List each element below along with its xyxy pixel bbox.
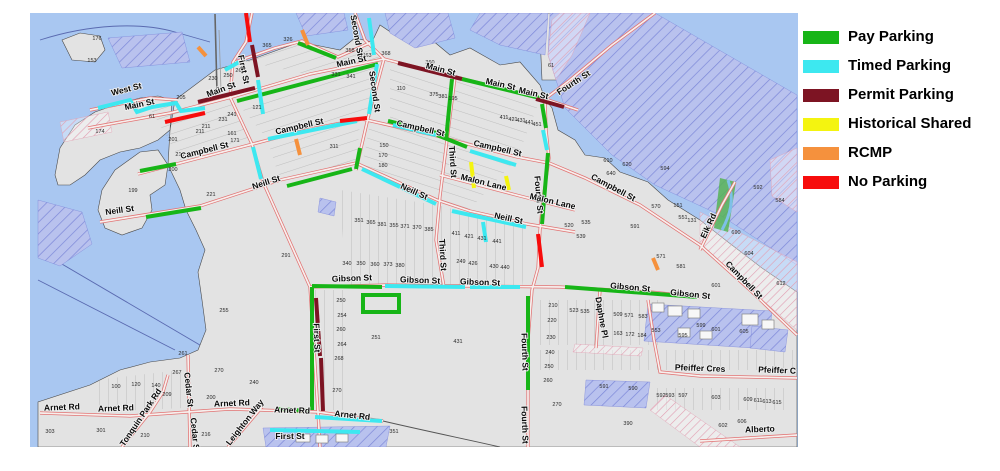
parcel-number: 326 — [283, 37, 292, 43]
parcel-number: 264 — [337, 342, 346, 348]
parcel-number: 268 — [334, 356, 343, 362]
parcel-number: 249 — [456, 259, 465, 265]
parcel-number: 584 — [775, 198, 784, 204]
parking-segment-pay — [312, 286, 382, 287]
parcel-number: 381 — [438, 94, 447, 100]
parcel-number: 231 — [218, 117, 227, 123]
parcel-number: 163 — [613, 331, 622, 337]
parcel-number: 131 — [687, 218, 696, 224]
parcel-number: 368 — [381, 51, 390, 57]
parcel-number: 597 — [678, 393, 687, 399]
parcel-number: 230 — [546, 335, 555, 341]
parcel-number: 161 — [227, 131, 236, 137]
parcel-number: 612 — [776, 281, 785, 287]
parcel-number: 211 — [202, 124, 211, 130]
parcel-number: 581 — [676, 264, 685, 270]
parcel-number: 110 — [397, 86, 406, 92]
street-label: Fourth St — [519, 333, 530, 371]
parcel-number: 592 — [753, 185, 762, 191]
parcel-number: 270 — [214, 368, 223, 374]
parcel-number: 351 — [354, 218, 363, 224]
parcel-number: 100 — [111, 384, 120, 390]
parcel-number: 195 — [448, 96, 457, 102]
legend-item: Historical Shared — [803, 117, 998, 131]
parcel-number: 371 — [400, 224, 409, 230]
legend-swatch-noparking — [803, 176, 839, 189]
parcel-number: 171 — [230, 138, 239, 144]
parcel-number: 605 — [739, 329, 748, 335]
legend-label: RCMP — [848, 146, 892, 160]
parcel-number: 535 — [581, 220, 590, 226]
parcel-number: 441 — [492, 239, 501, 245]
parcel-number: 539 — [576, 234, 585, 240]
parcel-number: 523 — [569, 308, 578, 314]
parcel-number: 291 — [281, 253, 290, 259]
parcel-number: 358 — [345, 48, 354, 54]
parcel-number: 430 — [489, 264, 498, 270]
parcel-number: 301 — [96, 428, 105, 434]
parcel-number: 210 — [140, 433, 149, 439]
parcel-number: 205 — [176, 95, 185, 101]
street-label: Gibson St — [400, 274, 441, 285]
parcel-number: 595 — [678, 333, 687, 339]
street-label: Arnet Rd — [274, 404, 310, 415]
parcel-number: 380 — [395, 263, 404, 269]
street-label: Arnet Rd — [214, 397, 250, 408]
parcel-number: 593 — [665, 393, 674, 399]
legend-swatch-permit — [803, 89, 839, 102]
legend-swatch-timed — [803, 60, 839, 73]
parcel-number: 250 — [544, 364, 553, 370]
parcel-number: 535 — [580, 309, 589, 315]
parcel-number: 553 — [651, 328, 660, 334]
parcel-number: 603 — [711, 395, 720, 401]
street-label: Pfeiffer Cres — [675, 362, 726, 374]
parcel-number: 240 — [545, 350, 554, 356]
parcel-number: 351 — [389, 429, 398, 435]
parcel-number: 260 — [336, 327, 345, 333]
street-label: Alberto — [745, 423, 775, 434]
street-label: Arnet Rd — [98, 402, 134, 413]
parcel-number: 509 — [613, 312, 622, 318]
parcel-number: 176 — [92, 36, 101, 42]
parcel-number: 570 — [651, 204, 660, 210]
parcel-number: 599 — [696, 323, 705, 329]
parcel-number: 591 — [630, 224, 639, 230]
street-label: Gibson St — [460, 276, 501, 287]
legend-item: No Parking — [803, 175, 998, 189]
parcel-number: 250 — [223, 73, 232, 79]
parcel-number: 210 — [548, 303, 557, 309]
parcel-number: 221 — [206, 192, 215, 198]
parcel-number: 241 — [227, 112, 236, 118]
parcel-number: 240 — [249, 380, 258, 386]
parcel-number: 602 — [718, 423, 727, 429]
parking-segment-timed — [385, 286, 465, 287]
legend-swatch-rcmp — [803, 147, 839, 160]
parcel-number: 381 — [377, 222, 386, 228]
parcel-number: 220 — [547, 318, 556, 324]
parking-segment-permit — [321, 358, 323, 411]
parcel-number: 571 — [656, 254, 665, 260]
parcel-number: 254 — [337, 313, 346, 319]
parcel-number: 365 — [262, 43, 271, 49]
parcel-number: 431 — [477, 236, 486, 242]
parcel-number: 360 — [370, 262, 379, 268]
parcel-number: 120 — [131, 382, 140, 388]
parcel-number: 251 — [371, 335, 380, 341]
legend-swatch-pay — [803, 31, 839, 44]
parcel-number: 303 — [45, 429, 54, 435]
parcel-number: 591 — [599, 384, 608, 390]
legend-label: Historical Shared — [848, 117, 971, 131]
parcel-number: 209 — [162, 392, 171, 398]
parcel-number: 174 — [95, 129, 104, 135]
parcel-number: 250 — [336, 298, 345, 304]
parcel-number: 270 — [332, 388, 341, 394]
parcel-number: 260 — [543, 378, 552, 384]
parcel-number: 520 — [564, 223, 573, 229]
parcel-number: 431 — [453, 339, 462, 345]
parcel-number: 201 — [168, 137, 177, 143]
parcel-number: 255 — [219, 308, 228, 314]
parcel-number: 421 — [464, 234, 473, 240]
parcel-number: 601 — [711, 283, 720, 289]
street-label: First St — [275, 431, 304, 441]
parcel-number: 270 — [552, 402, 561, 408]
parcel-number: 375 — [429, 92, 438, 98]
parcel-number: 200 — [168, 167, 177, 173]
parcel-number: 390 — [623, 421, 632, 427]
legend-swatch-historical — [803, 118, 839, 131]
parcel-number: 230 — [208, 76, 217, 82]
legend-item: Timed Parking — [803, 59, 998, 73]
parcel-number: 199 — [128, 188, 137, 194]
parcel-number: 611 — [754, 398, 763, 404]
legend-label: Timed Parking — [848, 59, 951, 73]
parcel-number: 594 — [660, 166, 669, 172]
parcel-number: 341 — [346, 74, 355, 80]
parcel-number: 267 — [172, 370, 181, 376]
parcel-number: 172 — [625, 332, 634, 338]
parcel-number: 153 — [87, 58, 96, 64]
parcel-number: 615 — [772, 400, 781, 406]
parcel-number: 690 — [731, 230, 740, 236]
map-legend: Pay Parking Timed Parking Permit Parking… — [803, 30, 998, 204]
parcel-number: 411 — [452, 231, 461, 237]
legend-item: Permit Parking — [803, 88, 998, 102]
legend-item: Pay Parking — [803, 30, 998, 44]
parcel-number: 613 — [762, 399, 771, 405]
parcel-number: 640 — [606, 171, 615, 177]
parcel-number: 373 — [383, 262, 392, 268]
parcel-number: 385 — [424, 227, 433, 233]
legend-label: Pay Parking — [848, 30, 934, 44]
parcel-number: 355 — [389, 223, 398, 229]
legend-item: RCMP — [803, 146, 998, 160]
parcel-number: 620 — [622, 162, 631, 168]
parcel-number: 340 — [342, 261, 351, 267]
parcel-number: 551 — [678, 215, 687, 221]
parcel-number: 571 — [624, 313, 633, 319]
parcel-number: 121 — [252, 105, 261, 111]
parcel-number: 216 — [201, 432, 210, 438]
parcel-number: 61 — [548, 63, 554, 69]
parcel-number: 601 — [711, 327, 720, 333]
parcel-number: 350 — [356, 261, 365, 267]
parcel-number: 451 — [532, 122, 541, 128]
parcel-number: 583 — [638, 314, 647, 320]
street-label: Fourth St — [519, 406, 530, 444]
parcel-number: 180 — [378, 163, 387, 169]
parcel-number: 150 — [379, 143, 388, 149]
parcel-number: 370 — [412, 225, 421, 231]
parcel-number: 609 — [743, 397, 752, 403]
parcel-number: 184 — [637, 333, 646, 339]
street-label: Gibson St — [332, 272, 373, 283]
street-label: First St — [311, 323, 322, 353]
street-label: Arnet Rd — [44, 401, 80, 412]
legend-label: No Parking — [848, 175, 927, 189]
parcel-number: 311 — [330, 144, 339, 150]
street-label: Pfeiffer C — [758, 364, 796, 375]
parcel-number: 440 — [500, 265, 509, 271]
parcel-number: 365 — [366, 220, 375, 226]
parcel-number: 604 — [744, 251, 753, 257]
parcel-number: 331 — [331, 72, 340, 78]
parcel-number: 592 — [656, 393, 665, 399]
parcel-number: 426 — [468, 261, 477, 267]
parcel-number: 170 — [378, 153, 387, 159]
parking-map-page: { "legend": { "items": [ {"label": "Pay … — [0, 0, 1000, 471]
parcel-number: 411 — [500, 115, 509, 121]
parcel-number: 151 — [673, 203, 682, 209]
parcel-number: 610 — [603, 158, 612, 164]
parcel-number: 261 — [178, 351, 187, 357]
street-label: Third St — [437, 239, 449, 272]
parcel-number: 61 — [149, 114, 155, 120]
legend-label: Permit Parking — [848, 88, 954, 102]
parcel-number: 590 — [628, 386, 637, 392]
